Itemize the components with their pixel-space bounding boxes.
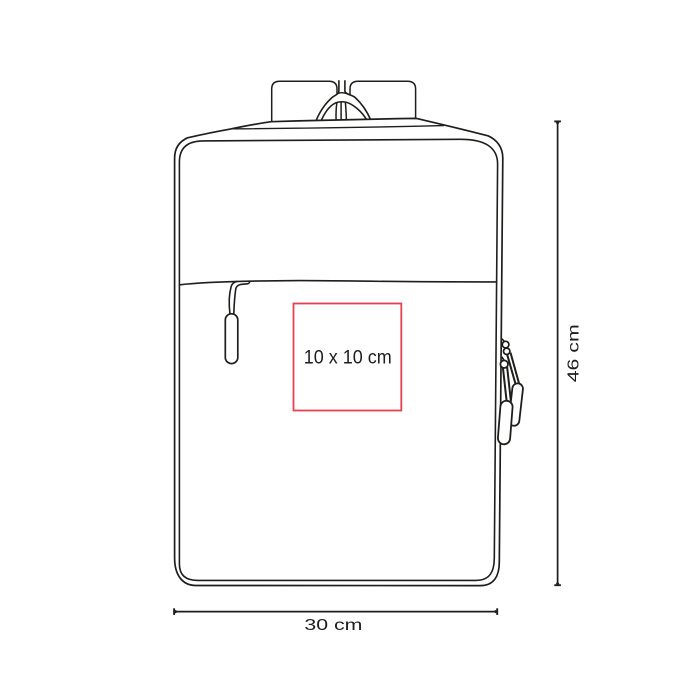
svg-text:30 cm: 30 cm	[304, 617, 362, 634]
svg-text:10 x 10 cm: 10 x 10 cm	[304, 348, 392, 369]
svg-text:46 cm: 46 cm	[566, 324, 583, 382]
